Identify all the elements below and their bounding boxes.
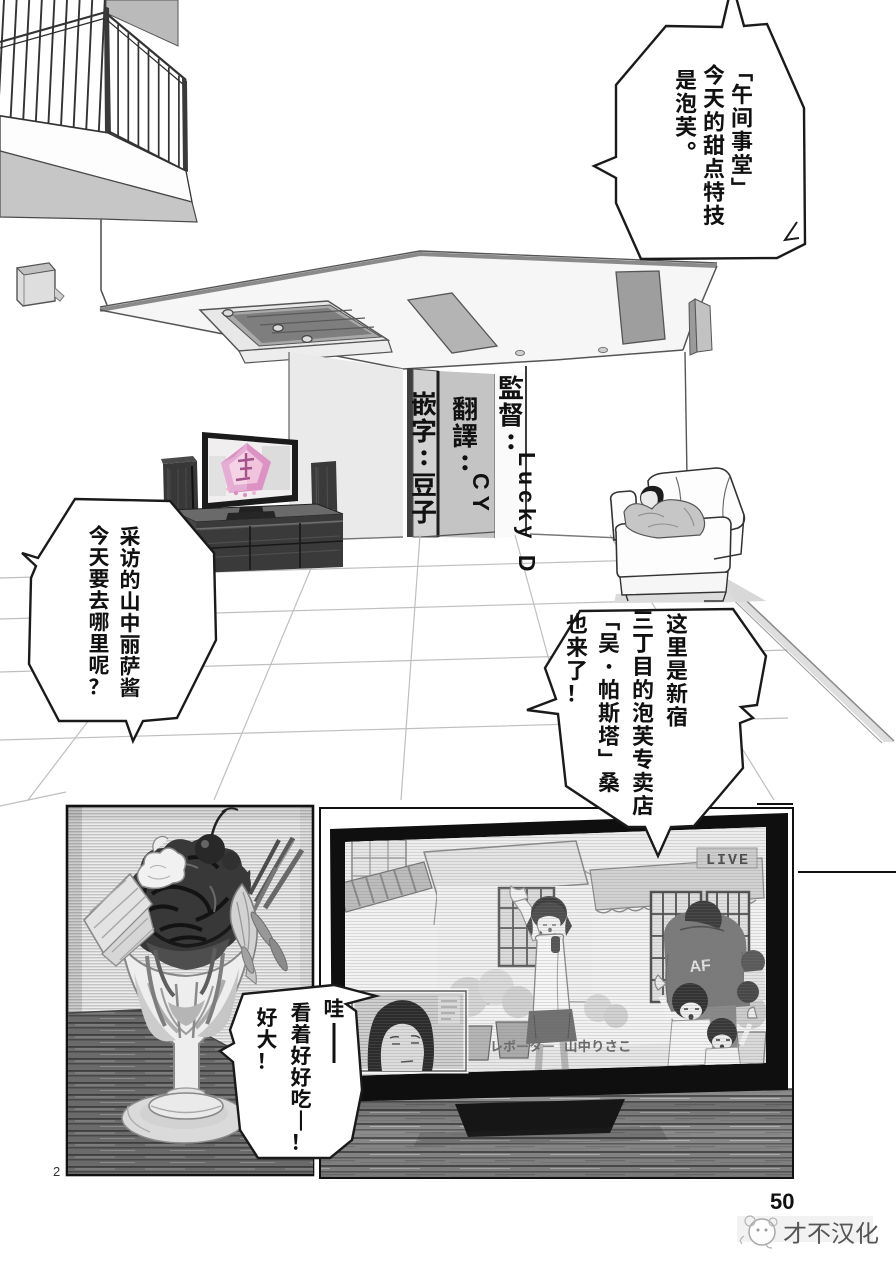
svg-text:CY: CY bbox=[468, 473, 494, 517]
svg-text:2: 2 bbox=[53, 1164, 60, 1179]
svg-text:Lucky D: Lucky D bbox=[514, 452, 540, 576]
svg-text:50: 50 bbox=[770, 1189, 794, 1214]
